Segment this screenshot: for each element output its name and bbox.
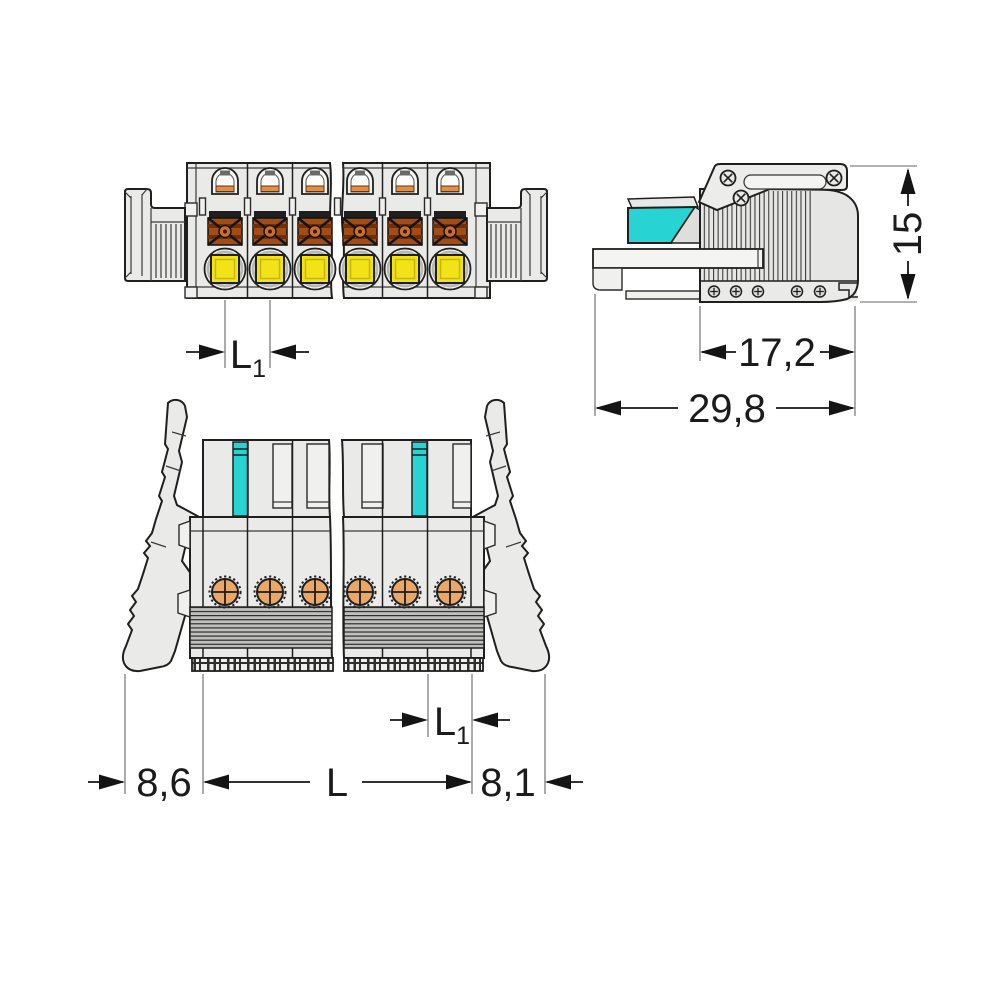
coding-key-cyan-right [412,442,427,516]
lever-hinge-step [475,287,487,298]
dim-label-length: L [326,761,348,805]
technical-drawing: L1 15 [0,0,1000,1000]
dim-label-bottom-pitch: L1 [434,700,470,750]
dim-label-left-offset: 8,6 [136,761,192,805]
coding-slot [273,444,292,508]
lever-catch-tab [179,521,190,549]
bracket-screw [721,171,736,186]
lever-catch-tab [178,590,190,617]
vent-grille-left [190,607,332,648]
arrowhead [472,713,498,728]
dim-label-right-offset: 8,1 [480,761,536,805]
rivet [709,286,720,297]
arrowhead [402,713,428,728]
coding-slot [307,444,329,508]
dim-label-depth-body: 17,2 [738,331,816,375]
lever-catch-tab [484,590,496,617]
arrowhead [901,168,916,194]
dim-front-pitch: L1 [186,300,309,383]
coding-slot [453,444,471,508]
dim-bottom-pitch: L1 [390,674,510,750]
arrowhead [901,274,916,300]
arrowhead [829,345,855,360]
arrowhead [595,401,621,416]
lever-hinge-step [475,203,487,216]
coding-slot [362,444,383,508]
dim-bottom-lengths: 8,6 L 8,1 [88,674,583,805]
drawing-canvas: L1 15 [0,0,1000,1000]
rivet [753,286,764,297]
arrowhead [99,775,125,790]
dim-side-depths: 17,2 29,8 [595,294,855,431]
vent-grille-right [344,607,484,648]
arrowhead [829,401,855,416]
front-view [125,163,547,298]
lever-catch-tab [484,521,495,549]
lever-hinge-step [185,203,197,216]
front-release-lever-left [125,189,185,281]
bottom-view [123,400,549,671]
dim-label-depth-total: 29,8 [688,387,766,431]
front-pole-4 [335,168,381,290]
dim-side-height: 15 [850,166,930,302]
arrowhead [446,775,472,790]
rivet [731,286,742,297]
dim-label-front-pitch: L1 [230,333,266,383]
rivet [815,286,826,297]
coding-key-cyan-left [233,442,248,516]
bracket-slot [744,175,826,189]
bar-foot [593,268,622,290]
arrowhead [700,345,726,360]
front-release-lever-right [487,189,547,281]
arrowhead [199,345,225,360]
strain-relief-bar [593,249,763,268]
comb-strip-left [192,658,333,671]
rivet-band [701,281,857,301]
bracket-screw [734,191,749,206]
dim-label-height: 15 [886,212,930,257]
arrowhead [270,345,296,360]
rivet [792,286,803,297]
side-view [593,164,858,302]
comb-strip-right [344,658,483,671]
lever-hinge-step [185,287,197,298]
bracket-screw [827,171,842,186]
housing-ledge [626,291,700,299]
